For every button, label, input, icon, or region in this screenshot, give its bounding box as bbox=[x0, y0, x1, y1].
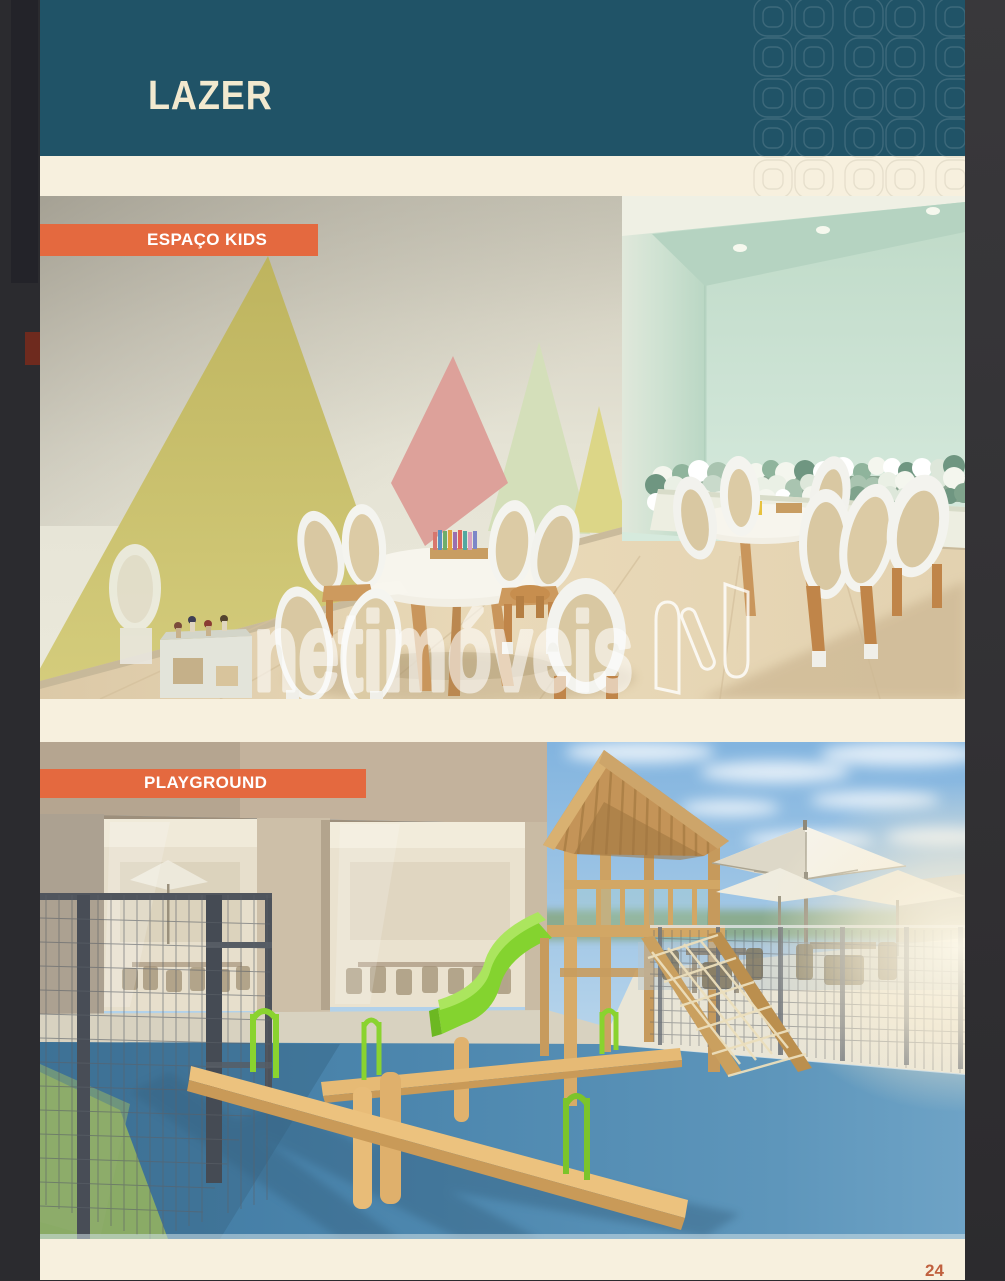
svg-text:netimóveis: netimóveis bbox=[254, 591, 633, 699]
